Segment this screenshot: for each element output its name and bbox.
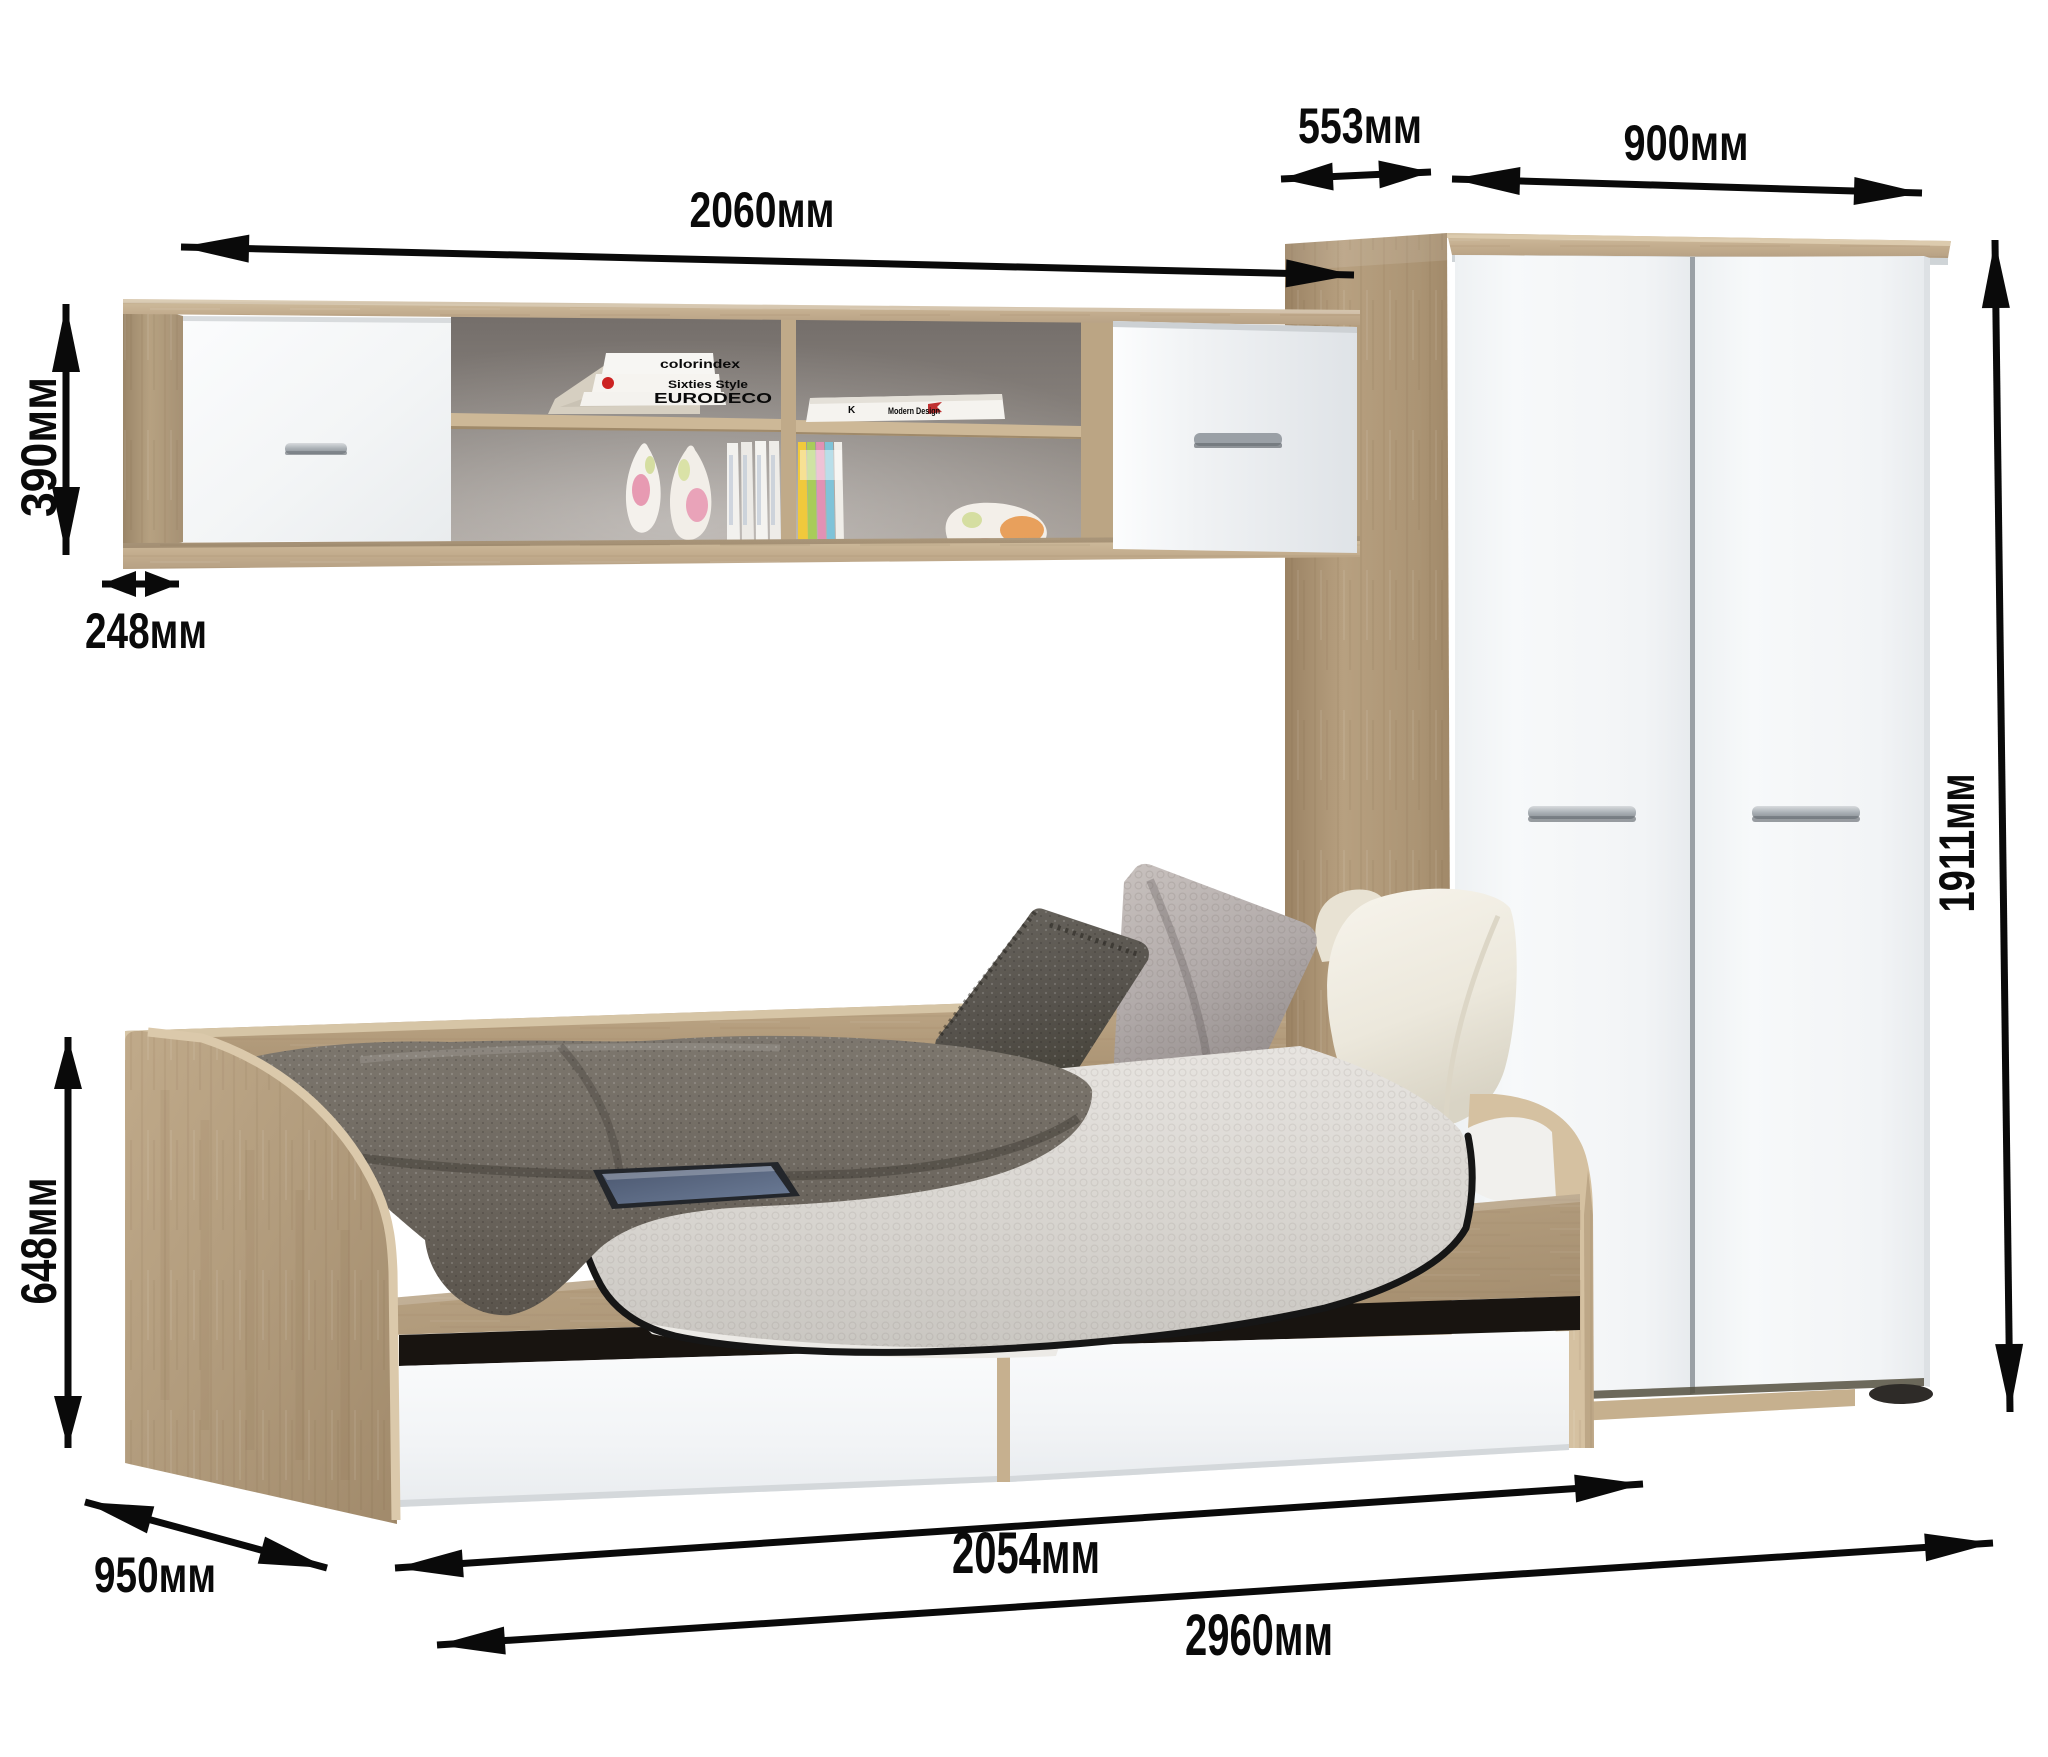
svg-text:648мм: 648мм <box>11 1178 67 1305</box>
svg-text:248мм: 248мм <box>85 603 207 659</box>
svg-text:2060мм: 2060мм <box>690 182 835 238</box>
svg-text:2960мм: 2960мм <box>1185 1603 1333 1668</box>
svg-text:553мм: 553мм <box>1298 98 1422 154</box>
svg-text:Modern Design: Modern Design <box>888 406 940 416</box>
svg-text:2054мм: 2054мм <box>952 1521 1100 1586</box>
svg-text:900мм: 900мм <box>1624 115 1749 171</box>
svg-text:colorindex: colorindex <box>660 357 740 371</box>
svg-text:EURODECO: EURODECO <box>654 390 772 407</box>
svg-text:1911мм: 1911мм <box>1929 774 1985 913</box>
svg-text:390мм: 390мм <box>11 377 67 517</box>
svg-text:Sixties Style: Sixties Style <box>668 379 748 391</box>
svg-text:950мм: 950мм <box>94 1547 216 1603</box>
svg-text:K: K <box>848 405 856 416</box>
